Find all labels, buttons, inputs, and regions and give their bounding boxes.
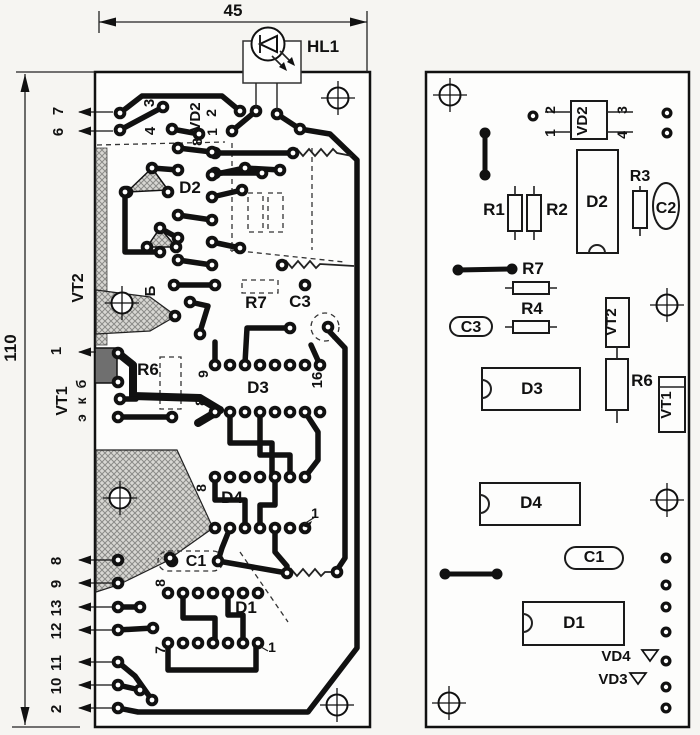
pad-hole [665,111,669,115]
pad-hole [288,526,293,531]
pad-hole [226,591,231,596]
label-VD2: VD2 [187,102,204,131]
label-R1: R1 [483,200,505,219]
arrowhead-icon [78,579,91,588]
arrowhead-icon [78,603,91,612]
pad-hole [280,263,285,268]
label-D4: D4 [520,493,542,512]
label-D2: D2 [179,178,201,197]
pad-hole [228,526,233,531]
pad-hole [158,226,163,231]
pad-hole [116,660,121,665]
label-2: 2 [203,109,219,117]
pad-hole [210,263,215,268]
pad-hole [150,698,155,703]
pad-hole [298,127,303,132]
label-C3: C3 [461,319,482,336]
label-D4: D4 [221,488,243,507]
pad-hole [664,659,668,663]
label-VD4: VD4 [601,648,631,665]
pad-hole [145,245,150,250]
pad-hole [238,109,243,114]
pad-hole [228,410,233,415]
label-C1: C1 [186,553,207,570]
pad-hole [181,641,186,646]
pad-hole [254,109,259,114]
pad-hole [241,591,246,596]
label-D3: D3 [247,378,269,397]
pad-hole [665,131,669,135]
component-r4 [513,321,549,333]
label-11: 11 [48,655,65,671]
pad-hole [243,166,248,171]
pad-hole [158,250,163,255]
pad-hole [326,325,331,330]
label-10: 10 [48,678,65,695]
label-б: б [73,379,89,388]
label-VT1: VT1 [658,391,675,419]
pad-hole [213,363,218,368]
pad-hole [273,363,278,368]
pad-hole [116,581,121,586]
label-HL1: HL1 [307,37,339,56]
label-D3: D3 [521,379,543,398]
pad-hole [172,283,177,288]
label-9: 9 [195,370,211,378]
pad-hole [211,591,216,596]
label-1: 1 [542,129,558,137]
label-R7: R7 [522,259,544,278]
pad-hole [664,630,668,634]
pad-hole [664,556,668,560]
label-8: 8 [193,484,209,492]
label-8: 8 [192,398,208,406]
pad-hole [170,415,175,420]
pad-hole [166,190,171,195]
pad-hole [664,583,668,587]
pad-hole [243,410,248,415]
pad-hole [176,168,181,173]
label-Б: Б [142,285,159,296]
pad-hole [258,526,263,531]
pad-hole [288,410,293,415]
pad-hole [291,151,296,156]
pad-hole [273,410,278,415]
pad-hole [210,150,215,155]
label-R7: R7 [245,293,267,312]
pad-hole [226,641,231,646]
arrowhead-icon [78,681,91,690]
arrowhead-icon [78,704,91,713]
pad-hole [166,641,171,646]
arrowhead-icon [78,108,91,117]
pad-hole [174,245,179,250]
pad-hole [116,628,121,633]
component-r6 [606,359,628,410]
pad-hole [273,526,278,531]
pad-hole [116,380,121,385]
pad-hole [213,283,218,288]
pad-hole [176,213,181,218]
label-VT2: VT2 [603,308,620,336]
pad-hole [303,283,308,288]
pad-hole [318,363,323,368]
label-VT1: VT1 [54,386,71,415]
pad-hole [210,218,215,223]
pad-hole [664,706,668,710]
label-R4: R4 [521,299,543,318]
label-9: 9 [48,580,65,588]
pcb-layout-drawing: 45110HL1 7634VD2218D2VT2БR7C31R6VT1бкэ91… [0,0,700,735]
pad-hole [288,363,293,368]
pad-hole [240,188,245,193]
pad-hole [151,626,156,631]
label-8: 8 [48,557,65,565]
arrowhead-icon [78,127,91,136]
pad-hole [258,363,263,368]
arrowhead-icon [78,658,91,667]
component-r1 [508,195,522,231]
label-R2: R2 [546,200,568,219]
pad-hole [213,410,218,415]
label-7: 7 [152,646,168,654]
component-r7 [513,282,549,294]
pad-hole [176,146,181,151]
pad-hole [161,105,166,110]
label-13: 13 [48,600,65,617]
label-D2: D2 [586,192,608,211]
pad-hole [123,190,128,195]
pad-hole [228,475,233,480]
label-C2: C2 [656,200,677,217]
pad-hole [275,112,280,117]
label-2: 2 [48,705,65,713]
pad-hole [228,363,233,368]
pad-hole [118,111,123,116]
pad-hole [303,363,308,368]
pad-hole [243,475,248,480]
component-r2 [527,195,541,231]
pad-hole [116,415,121,420]
pad-hole [318,410,323,415]
label-R3: R3 [630,168,651,185]
pad-hole [116,683,121,688]
pad-hole [181,591,186,596]
label-7: 7 [50,107,67,115]
pad-hole [288,475,293,480]
pad-hole [116,558,121,563]
arrowhead-icon [78,348,91,357]
pad-hole [664,605,668,609]
pad-hole [198,332,203,337]
label-D1: D1 [235,598,257,617]
label-к: к [73,397,89,405]
label-6: 6 [50,128,67,136]
pad-hole [230,129,235,134]
pcb-drawing-canvas: 45110HL1 7634VD2218D2VT2БR7C31R6VT1бкэ91… [0,0,700,735]
component-r3 [633,191,647,228]
pad-hole [210,195,215,200]
pad-hole [196,591,201,596]
pad-hole [243,363,248,368]
pad-hole [116,706,121,711]
pad-hole [170,127,175,132]
pad-hole [138,605,143,610]
label-VT2: VT2 [70,273,87,302]
pad-hole [118,128,123,133]
pad-hole [273,475,278,480]
pad-hole [138,688,143,693]
pad-hole [173,314,178,319]
pad-hole [150,166,155,171]
label-VD2: VD2 [574,106,591,135]
pad-hole [210,173,215,178]
pad-hole [256,591,261,596]
pad-hole [213,526,218,531]
jumper-wire [458,269,512,270]
pad-hole [116,605,121,610]
label-4: 4 [142,126,159,135]
arrowhead-icon [78,556,91,565]
arrowhead-icon [78,626,91,635]
pad-hole [213,475,218,480]
pad-hole [211,641,216,646]
label-1: 1 [268,639,276,655]
label-8: 8 [152,579,168,587]
label-45: 45 [224,1,243,20]
pad-hole [303,410,308,415]
label-C3: C3 [289,292,311,311]
pad-hole [243,526,248,531]
pad-hole [260,171,265,176]
pad-hole [238,246,243,251]
pad-hole [258,475,263,480]
pad-hole [256,641,261,646]
pad-hole [278,168,283,173]
pad-hole [241,641,246,646]
pad-hole [116,351,121,356]
pad-hole [335,570,340,575]
pad-hole [196,641,201,646]
label-D1: D1 [563,613,585,632]
label-VD3: VD3 [598,671,627,688]
label-110: 110 [1,334,20,361]
pad-hole [168,556,173,561]
pad-hole [216,559,221,564]
label-1: 1 [48,347,65,355]
label-R6: R6 [137,360,159,379]
pad-hole [285,571,290,576]
label-3: 3 [614,106,630,114]
label-э: э [73,414,89,422]
label-C1: C1 [584,549,605,566]
pad-hole [303,475,308,480]
label-8: 8 [189,138,205,146]
label-12: 12 [48,623,65,640]
pad-hole [176,258,181,263]
pad-hole [188,300,193,305]
label-2: 2 [542,106,558,114]
pad-hole [176,236,181,241]
label-16: 16 [309,372,326,389]
pad-hole [258,410,263,415]
pad-hole [166,591,171,596]
label-R6: R6 [631,371,653,390]
label-3: 3 [141,99,158,107]
pad-hole [288,326,293,331]
label-1: 1 [204,128,220,136]
pad-hole [118,397,123,402]
pad-hole [664,685,668,689]
pad-hole [531,114,535,118]
label-4: 4 [614,131,630,139]
pad-hole [210,240,215,245]
label-1: 1 [311,505,319,521]
